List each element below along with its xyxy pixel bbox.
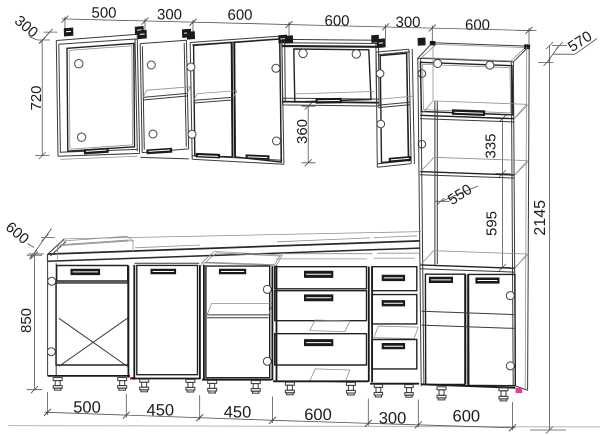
svg-text:360: 360	[294, 119, 311, 144]
svg-text:600: 600	[324, 13, 349, 30]
svg-text:600: 600	[304, 406, 332, 424]
svg-text:500: 500	[91, 5, 116, 22]
svg-text:2145: 2145	[532, 200, 549, 236]
svg-text:300: 300	[395, 14, 420, 31]
svg-text:450: 450	[147, 401, 175, 419]
svg-text:600: 600	[453, 407, 481, 425]
svg-text:720: 720	[28, 85, 45, 110]
svg-text:335: 335	[483, 133, 500, 158]
svg-text:600: 600	[465, 17, 490, 34]
svg-text:300: 300	[157, 6, 182, 23]
svg-text:500: 500	[73, 399, 101, 417]
svg-text:595: 595	[484, 211, 501, 236]
svg-text:600: 600	[227, 7, 252, 24]
svg-text:450: 450	[224, 403, 252, 421]
svg-text:300: 300	[379, 409, 407, 427]
svg-text:850: 850	[18, 308, 35, 333]
